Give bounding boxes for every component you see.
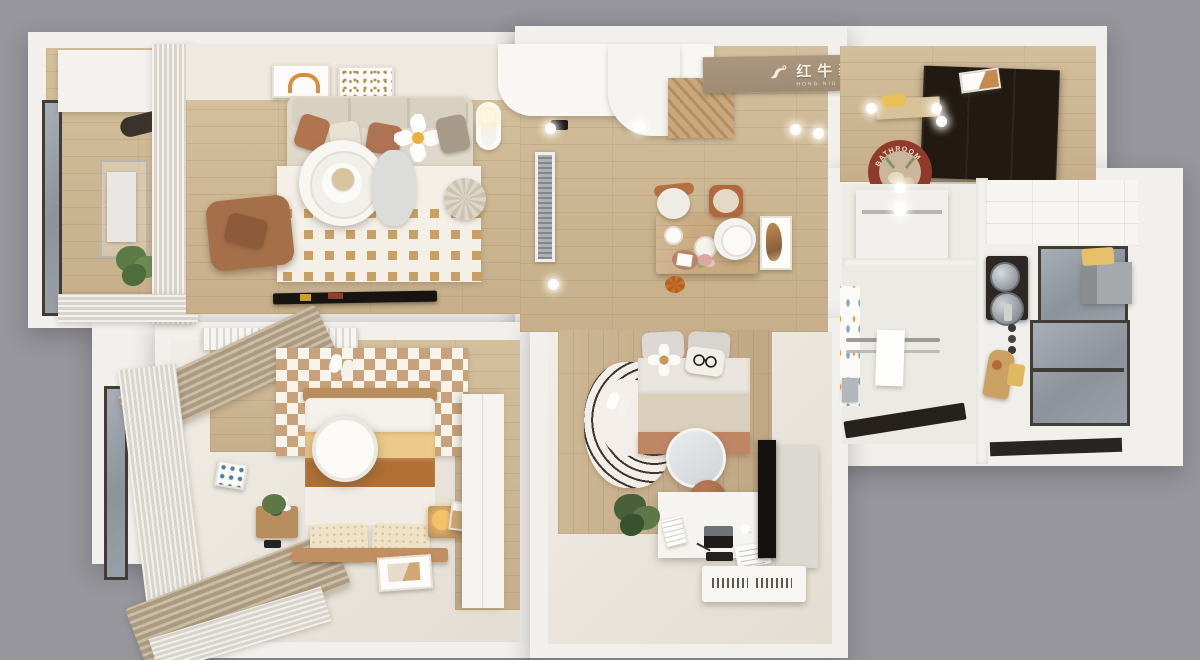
wall-art-floral [338,66,394,98]
kitchen-window-lower [1030,320,1130,426]
windowsill-book [214,460,248,490]
cabinet-vent-1 [712,578,748,588]
keyboard [706,552,733,561]
console-deco-red [328,293,343,299]
gray-cabinet [1082,262,1132,304]
glasses-doodle [689,349,721,373]
pleated-pouf [444,178,486,220]
balcony-curtain-bottom [58,294,198,322]
tv-backpanel [776,446,818,568]
bedroom2-tv [758,440,776,558]
vanity-mirror [666,428,726,488]
balcony-window [42,100,62,316]
cooking-pot-1 [990,262,1020,292]
bed2-daisy-pillow [648,344,680,376]
spotlight [895,182,906,193]
bath-mat-white [875,330,905,387]
spotlight [866,103,877,114]
entry-shelf-cloth [881,93,906,108]
dining-flowers [698,254,712,266]
cabinet-vent-2 [756,578,792,588]
spice-jar-1 [1008,324,1016,332]
dining-plate-small [664,226,683,245]
bed1-sheet-white [305,487,435,525]
oil-bottle [1004,304,1012,321]
spotlight [634,122,645,133]
lounge-ottoman [372,150,416,226]
yellow-towel [1081,247,1114,266]
wall-art-rainbow [272,64,330,98]
pumpkin [665,276,685,293]
floor-frame-art [377,554,433,592]
desk-flower [740,524,750,533]
cutting-board-food [992,360,1002,370]
bedroom1-wardrobe [462,394,504,608]
nightstand-flowers [262,494,286,514]
spice-jar-2 [1008,335,1016,343]
hall-console-light [893,202,907,216]
nightstand-remote [264,540,281,548]
kitchen-window-bar [1032,368,1124,372]
washer-cabinet [58,50,162,112]
spotlight [545,123,556,134]
spotlight [931,103,942,114]
bathroom-wall-cabinet [842,378,858,402]
apartment-3d-floorplan: 红牛装饰 HONG NIU DECORATION BATHROOM [0,0,1200,660]
dining-chair-cushion [713,189,739,213]
kitchen-wall-tiles [986,180,1138,246]
floor-lamp-glow [481,110,495,124]
laptop [704,526,733,548]
dining-photo [676,253,693,267]
hall-console [856,190,948,260]
console-deco-gold [300,294,311,301]
bedroom1-ceiling-lamp [312,416,378,482]
drying-rack-panel [107,172,136,242]
pendant-lamp-ring [721,225,753,257]
spotlight [936,116,947,127]
spotlight [548,279,559,290]
bull-logo-icon [767,63,789,85]
spotlight [790,124,801,135]
coffee-table-tray [332,168,354,190]
spotlight [813,128,824,139]
dining-chair-white [657,188,690,219]
floor-vent [535,152,555,262]
yellow-towel-2 [1007,363,1026,387]
hall-wall-art [760,216,792,270]
